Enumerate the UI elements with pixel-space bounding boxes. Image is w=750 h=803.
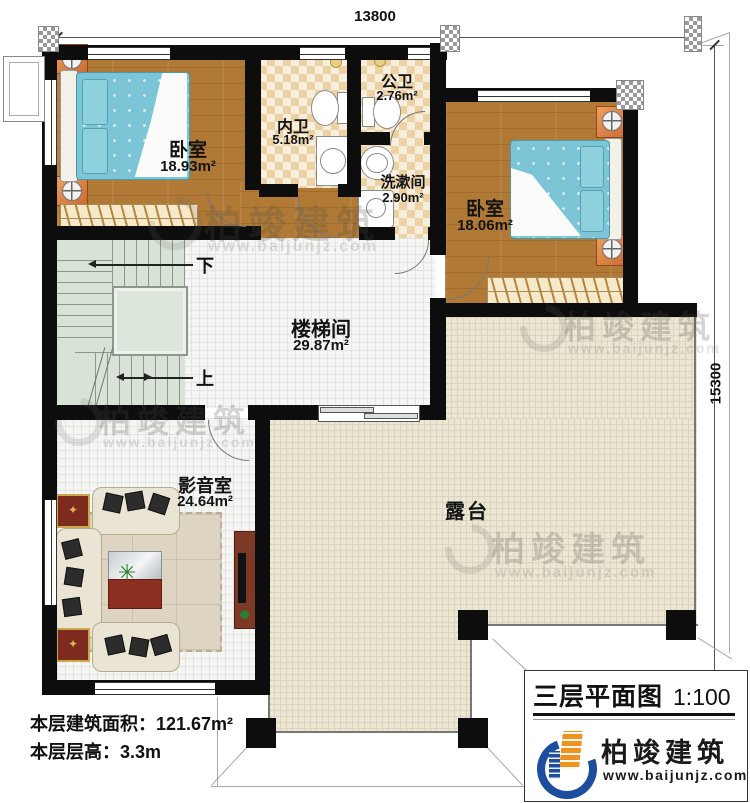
- dim-label-right: 15300: [708, 344, 725, 424]
- stair-arrow-down-line: [95, 264, 193, 266]
- sink-basin: [320, 148, 346, 174]
- stair-up-label: 上: [196, 365, 214, 391]
- window: [95, 682, 215, 695]
- wall: [42, 405, 205, 420]
- room-area-washroom: 2.90m²: [367, 190, 439, 205]
- wall: [55, 226, 261, 240]
- sofa-cushion: [62, 597, 82, 617]
- room-area-media-room: 24.64m²: [160, 493, 250, 510]
- room-area-public-bath: 2.76m²: [362, 88, 432, 103]
- pillow: [580, 146, 604, 188]
- drawing-scale: 1:100: [673, 684, 731, 711]
- wall: [259, 184, 298, 197]
- terrace-column: [666, 610, 696, 640]
- eaves-line: [487, 747, 523, 786]
- dim-line-top: [57, 37, 690, 38]
- stair-arrow-head: [144, 373, 152, 381]
- wall: [245, 45, 261, 190]
- wall: [623, 88, 638, 317]
- stair-arrow-up-line: [122, 377, 193, 379]
- stair-treads-top: [112, 238, 185, 286]
- dim-label-top: 13800: [330, 8, 420, 25]
- sofa-cushion: [64, 567, 85, 588]
- logo-building-blue: [549, 751, 560, 779]
- hatch-mark: [38, 26, 59, 52]
- terrace-column: [458, 610, 488, 640]
- drawing-title: 三层平面图: [533, 677, 663, 713]
- parapet-line: [694, 317, 696, 617]
- title-underline-thin: [533, 719, 735, 720]
- hatch-mark: [616, 80, 644, 110]
- wall: [430, 43, 446, 255]
- room-area-bedroom-right: 18.06m²: [445, 217, 525, 234]
- sofa-cushion: [129, 637, 150, 658]
- logo-building-orange: [559, 731, 583, 769]
- window: [44, 80, 57, 165]
- eaves-line: [492, 638, 529, 672]
- window: [44, 500, 57, 605]
- pillow: [82, 79, 108, 125]
- wardrobe: [487, 277, 627, 305]
- title-underline: [533, 713, 735, 716]
- stair-arrow-head: [88, 260, 96, 268]
- lamp-icon: [62, 181, 82, 201]
- window: [478, 90, 590, 102]
- plant-dot-icon: [240, 610, 249, 619]
- eaves-line: [729, 33, 730, 653]
- terrace-column: [246, 718, 276, 748]
- lamp-icon: [602, 111, 622, 131]
- room-label-terrace: 露台: [437, 495, 497, 524]
- wall: [430, 303, 697, 317]
- parapet-line: [275, 731, 472, 733]
- floor-mat: ✦: [56, 628, 90, 662]
- wash-basin-inner: [366, 153, 388, 173]
- title-block: 三层平面图 1:100 柏竣建筑 www.baijunjz.com: [524, 670, 748, 802]
- room-area-bedroom-left: 18.93m²: [138, 158, 238, 175]
- brand-logo-icon: [535, 729, 593, 791]
- eaves-line: [698, 637, 732, 659]
- floor-mat: ✦: [56, 494, 90, 528]
- plant-icon: ✳: [118, 562, 136, 584]
- lamp-icon: [602, 239, 622, 259]
- wall: [347, 45, 361, 197]
- sofa-cushion: [125, 491, 146, 512]
- wall: [430, 317, 446, 418]
- floor-plan-canvas: 13800 15300 下 上: [0, 0, 750, 803]
- stair-arrow-head: [116, 373, 124, 381]
- sofa-cushion: [102, 492, 123, 513]
- terrace-column: [458, 718, 488, 748]
- wall: [418, 405, 446, 420]
- tv-screen: [238, 553, 246, 603]
- sliding-door-panel: [364, 413, 418, 419]
- sofa-cushion: [104, 634, 125, 655]
- room-area-stair-hall: 29.87m²: [271, 337, 371, 354]
- brand-website: www.baijunjz.com: [603, 767, 748, 783]
- pillow: [580, 190, 604, 232]
- wall: [359, 132, 390, 145]
- hatch-mark: [440, 25, 460, 52]
- parapet-line: [470, 626, 472, 733]
- wall: [359, 227, 395, 240]
- room-area-inner-bath: 5.18m²: [258, 132, 328, 147]
- floor-height-text: 本层层高：3.3m: [30, 738, 161, 764]
- floor-area-text: 本层建筑面积：121.67m²: [30, 710, 233, 736]
- window: [88, 47, 170, 60]
- stair-down-label: 下: [196, 252, 214, 278]
- stair-landing: [112, 286, 188, 356]
- pillow: [82, 128, 108, 174]
- wall: [255, 418, 270, 683]
- hatch-mark: [684, 16, 702, 52]
- room-label-washroom: 洗漱间: [367, 171, 439, 192]
- planter-box-inner: [9, 62, 39, 116]
- window: [300, 47, 345, 60]
- brand-name: 柏竣建筑: [601, 731, 729, 770]
- floor-terrace: [268, 626, 472, 733]
